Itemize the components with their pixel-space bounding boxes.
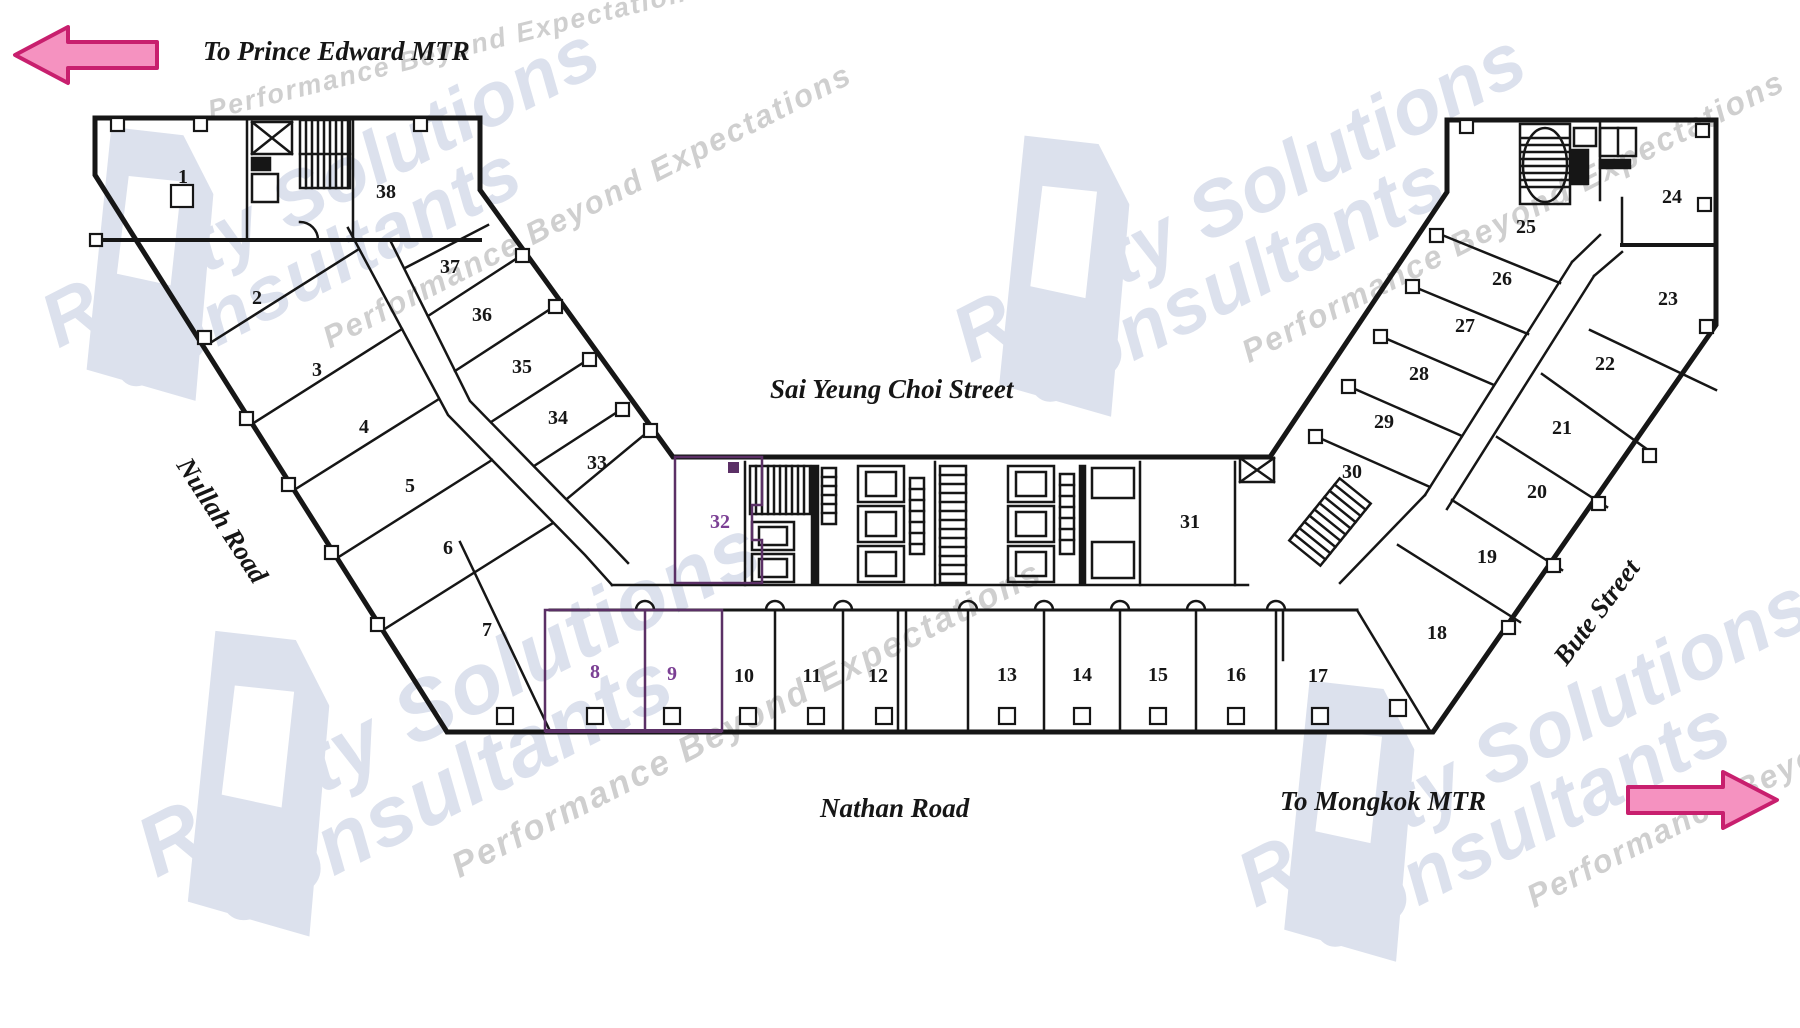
unit-label-9: 9 (667, 664, 677, 684)
unit-label-16: 16 (1226, 665, 1246, 685)
unit-label-29: 29 (1374, 412, 1394, 432)
unit-label-23: 23 (1658, 289, 1678, 309)
unit-label-38: 38 (376, 182, 396, 202)
unit-label-4: 4 (359, 417, 369, 437)
right-arrow-icon (1626, 768, 1780, 830)
floor-plan-page: Realty Solutions Consultants Performance… (0, 0, 1800, 843)
left-arrow-icon (12, 24, 159, 86)
label-to-mongkok-mtr: To Mongkok MTR (1280, 786, 1486, 817)
unit-label-22: 22 (1595, 354, 1615, 374)
label-sai-yeung-choi-street: Sai Yeung Choi Street (770, 374, 1013, 405)
floor-plan-drawing (0, 0, 1800, 843)
unit-label-1: 1 (178, 167, 188, 187)
unit-label-34: 34 (548, 408, 568, 428)
unit-label-27: 27 (1455, 316, 1475, 336)
unit-label-7: 7 (482, 620, 492, 640)
unit-label-31: 31 (1180, 512, 1200, 532)
unit-label-36: 36 (472, 305, 492, 325)
unit-label-30: 30 (1342, 462, 1362, 482)
unit-label-35: 35 (512, 357, 532, 377)
unit-label-25: 25 (1516, 217, 1536, 237)
unit-label-6: 6 (443, 538, 453, 558)
label-nathan-road: Nathan Road (820, 793, 969, 824)
unit-label-37: 37 (440, 257, 460, 277)
unit-label-24: 24 (1662, 187, 1682, 207)
unit-label-15: 15 (1148, 665, 1168, 685)
unit-label-12: 12 (868, 666, 888, 686)
unit-label-11: 11 (803, 666, 822, 686)
unit-label-10: 10 (734, 666, 754, 686)
unit-label-33: 33 (587, 453, 607, 473)
unit-label-28: 28 (1409, 364, 1429, 384)
unit-label-19: 19 (1477, 547, 1497, 567)
unit-label-26: 26 (1492, 269, 1512, 289)
unit-label-32: 32 (710, 512, 730, 532)
unit-label-21: 21 (1552, 418, 1572, 438)
label-to-prince-edward-mtr: To Prince Edward MTR (203, 36, 470, 67)
unit-label-3: 3 (312, 360, 322, 380)
unit-label-18: 18 (1427, 623, 1447, 643)
unit-label-2: 2 (252, 288, 262, 308)
unit-label-17: 17 (1308, 666, 1328, 686)
unit-label-14: 14 (1072, 665, 1092, 685)
unit-label-8: 8 (590, 662, 600, 682)
unit-label-20: 20 (1527, 482, 1547, 502)
unit-label-13: 13 (997, 665, 1017, 685)
unit-label-5: 5 (405, 476, 415, 496)
